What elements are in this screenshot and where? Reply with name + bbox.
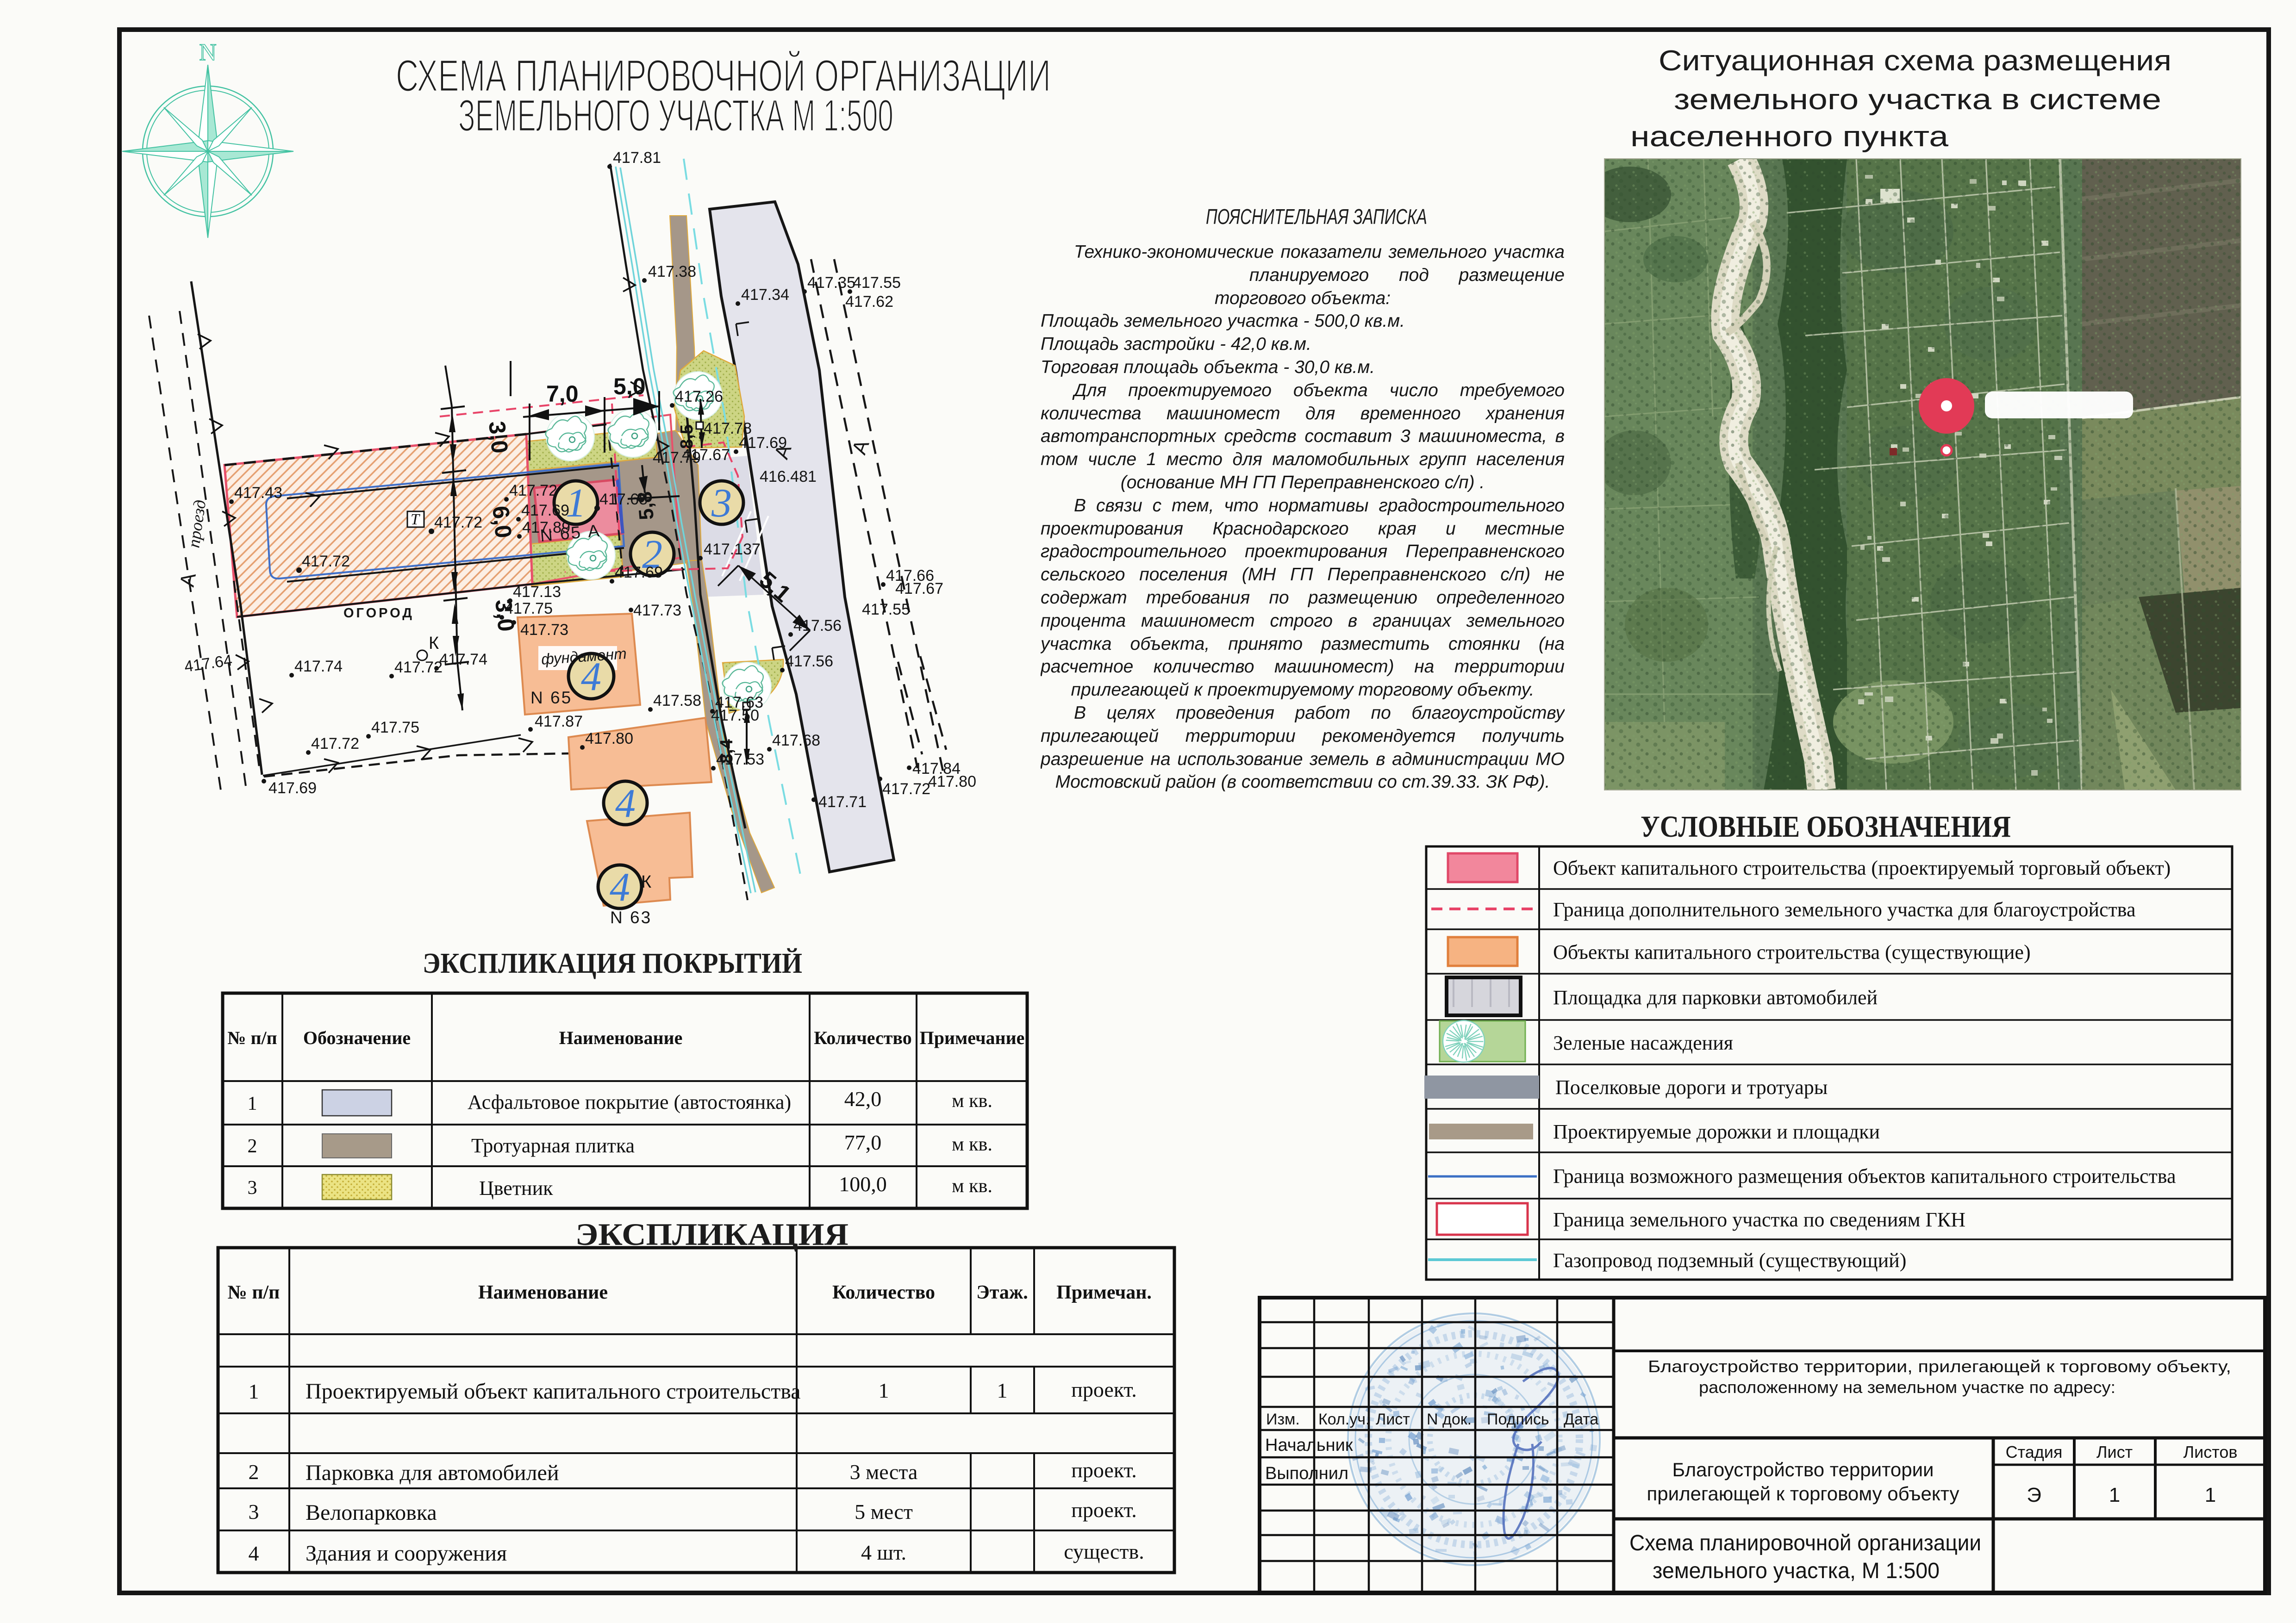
svg-text:Листов: Листов <box>2184 1443 2238 1461</box>
svg-text:417.13: 417.13 <box>513 583 561 601</box>
svg-text:4: 4 <box>249 1542 259 1565</box>
svg-text:Этаж.: Этаж. <box>976 1282 1028 1303</box>
svg-text:42,0: 42,0 <box>844 1087 882 1111</box>
svg-text:417.81: 417.81 <box>613 149 661 167</box>
svg-text:77,0: 77,0 <box>844 1131 882 1154</box>
svg-text:прилегающей к торговому объект: прилегающей к торговому объекту <box>1647 1483 1959 1505</box>
svg-text:1: 1 <box>2109 1484 2120 1506</box>
svg-text:Дата: Дата <box>1564 1411 1598 1428</box>
svg-text:417.72: 417.72 <box>434 514 482 531</box>
svg-text:Граница дополнительного земель: Граница дополнительного земельного участ… <box>1553 898 2135 921</box>
svg-text:А: А <box>848 436 873 457</box>
svg-text:4: 4 <box>615 781 636 826</box>
svg-text:1: 1 <box>249 1380 259 1403</box>
svg-text:417.72: 417.72 <box>882 780 930 798</box>
svg-text:Выполнил: Выполнил <box>1265 1464 1348 1483</box>
svg-text:N 65: N 65 <box>530 688 572 707</box>
svg-text:Количество: Количество <box>832 1282 935 1303</box>
svg-text:417.55: 417.55 <box>862 601 910 618</box>
svg-text:8,5: 8,5 <box>677 424 697 449</box>
svg-text:3: 3 <box>711 481 732 526</box>
svg-text:земельного участка, М 1:500: земельного участка, М 1:500 <box>1653 1559 1940 1583</box>
svg-text:417.43: 417.43 <box>234 484 282 502</box>
svg-text:1: 1 <box>997 1379 1008 1402</box>
svg-text:земельного участка в систем: земельного участка в системе <box>1674 84 2161 116</box>
svg-text:417.80: 417.80 <box>585 730 633 747</box>
svg-text:Э: Э <box>2027 1484 2041 1506</box>
svg-text:2: 2 <box>248 1136 257 1157</box>
svg-text:проект.: проект. <box>1071 1378 1136 1401</box>
svg-text:417.64: 417.64 <box>183 652 233 676</box>
svg-text:Обозначение: Обозначение <box>303 1027 411 1048</box>
svg-text:Объект капитального строительс: Объект капитального строительства (проек… <box>1553 857 2171 879</box>
svg-text:N: N <box>199 39 217 66</box>
svg-text:населенного пункта: населенного пункта <box>1630 121 1949 153</box>
svg-text:Кол.уч.: Кол.уч. <box>1318 1411 1370 1428</box>
svg-text:К: К <box>641 872 651 892</box>
svg-text:Цветник: Цветник <box>479 1177 553 1200</box>
svg-text:Здания и сооружения: Здания и сооружения <box>306 1541 507 1566</box>
svg-text:417.73: 417.73 <box>633 602 681 619</box>
svg-text:417.62: 417.62 <box>845 293 893 311</box>
svg-text:417.50: 417.50 <box>711 707 759 724</box>
svg-text:К: К <box>429 634 439 653</box>
svg-text:417.137: 417.137 <box>704 541 761 558</box>
svg-text:417.89: 417.89 <box>522 519 570 536</box>
svg-text:Подпись: Подпись <box>1487 1411 1549 1428</box>
svg-text:проект.: проект. <box>1071 1458 1136 1482</box>
svg-text:1: 1 <box>879 1379 889 1402</box>
svg-text:Объекты капитального строитель: Объекты капитального строительства (суще… <box>1553 941 2031 964</box>
svg-text:N док.: N док. <box>1427 1411 1472 1428</box>
svg-text:4 шт.: 4 шт. <box>861 1541 906 1564</box>
svg-text:100,0: 100,0 <box>839 1172 887 1196</box>
svg-text:Т: Т <box>411 511 420 528</box>
svg-text:ЗЕМЕЛЬНОГО УЧАСТКА М 1:500: ЗЕМЕЛЬНОГО УЧАСТКА М 1:500 <box>458 90 893 141</box>
svg-text:3,0: 3,0 <box>484 420 513 454</box>
svg-text:417.56: 417.56 <box>785 653 833 670</box>
svg-text:Наименование: Наименование <box>478 1282 608 1303</box>
svg-text:416.481: 416.481 <box>760 468 817 485</box>
svg-text:4: 4 <box>610 865 630 910</box>
svg-text:Изм.: Изм. <box>1266 1411 1300 1428</box>
svg-text:Асфальтовое покрытие (автостоя: Асфальтовое покрытие (автостоянка) <box>468 1091 791 1113</box>
svg-text:Количество: Количество <box>814 1027 912 1048</box>
svg-text:ОГОРОД: ОГОРОД <box>343 606 414 621</box>
svg-text:417.79: 417.79 <box>653 449 701 466</box>
svg-text:3: 3 <box>249 1500 259 1524</box>
svg-text:417.55: 417.55 <box>853 274 901 292</box>
svg-text:Примечан.: Примечан. <box>1056 1282 1152 1303</box>
svg-text:УСЛОВНЫЕ ОБОЗНАЧЕНИЯ: УСЛОВНЫЕ ОБОЗНАЧЕНИЯ <box>1641 810 2011 844</box>
svg-text:м кв.: м кв. <box>952 1090 992 1112</box>
svg-text:Парковка для автомобилей: Парковка для автомобилей <box>306 1461 559 1485</box>
svg-text:417.67: 417.67 <box>895 580 943 597</box>
svg-text:417.75: 417.75 <box>505 600 553 617</box>
svg-text:существ.: существ. <box>1064 1540 1144 1563</box>
svg-text:417.72: 417.72 <box>302 553 350 570</box>
svg-text:Площадка для парковки автомоби: Площадка для парковки автомобилей <box>1553 986 1878 1009</box>
svg-text:Тротуарная плитка: Тротуарная плитка <box>471 1134 635 1157</box>
svg-text:проезд: проезд <box>184 498 210 549</box>
svg-text:ЭКСПЛИКАЦИЯ: ЭКСПЛИКАЦИЯ <box>575 1217 849 1252</box>
svg-text:417.69: 417.69 <box>615 564 663 581</box>
svg-text:417.72: 417.72 <box>311 735 359 752</box>
svg-text:1: 1 <box>248 1093 257 1114</box>
svg-text:Граница земельного участка по: Граница земельного участка по сведениям … <box>1553 1208 1965 1231</box>
svg-text:417.68: 417.68 <box>772 732 820 749</box>
svg-text:Наименование: Наименование <box>559 1027 683 1048</box>
svg-text:Зеленые насаждения: Зеленые насаждения <box>1553 1032 1733 1054</box>
svg-text:А: А <box>176 571 200 589</box>
svg-text:417.38: 417.38 <box>648 263 696 280</box>
svg-text:Благоустройство территории: Благоустройство территории <box>1672 1459 1934 1480</box>
svg-text:1: 1 <box>2205 1484 2216 1506</box>
svg-text:3 места: 3 места <box>850 1460 918 1484</box>
svg-text:N 63: N 63 <box>610 908 652 927</box>
svg-text:Ситуационная схема размещени: Ситуационная схема размещения <box>1659 45 2171 77</box>
svg-text:расположенному на земельном уч: расположенному на земельном участке по а… <box>1699 1378 2115 1397</box>
svg-text:417.68: 417.68 <box>599 491 648 508</box>
svg-text:417.72: 417.72 <box>509 482 557 499</box>
svg-text:Благоустройство территории, пр: Благоустройство территории, прилегающей … <box>1648 1357 2231 1376</box>
svg-text:ПОЯСНИТЕЛЬНАЯ ЗАПИСКА: ПОЯСНИТЕЛЬНАЯ ЗАПИСКА <box>1206 205 1427 229</box>
svg-text:5,0: 5,0 <box>613 373 646 399</box>
svg-text:Стадия: Стадия <box>2006 1443 2063 1461</box>
svg-text:417.71: 417.71 <box>818 793 867 811</box>
svg-text:6,0: 6,0 <box>487 504 517 539</box>
svg-text:417.69: 417.69 <box>268 779 317 797</box>
svg-text:ЭКСПЛИКАЦИЯ ПОКРЫТИЙ: ЭКСПЛИКАЦИЯ ПОКРЫТИЙ <box>423 948 802 979</box>
svg-text:417.26: 417.26 <box>675 388 723 405</box>
svg-text:Начальник: Начальник <box>1265 1436 1353 1455</box>
svg-text:3: 3 <box>248 1177 257 1199</box>
svg-text:Схема планировочной организаци: Схема планировочной организации <box>1629 1531 1981 1555</box>
svg-text:417.80: 417.80 <box>928 773 976 790</box>
svg-text:5 мест: 5 мест <box>855 1500 913 1524</box>
svg-text:417.34: 417.34 <box>741 286 789 304</box>
svg-text:417.74: 417.74 <box>294 658 343 675</box>
svg-text:Газопровод подземный (существу: Газопровод подземный (существующий) <box>1553 1249 1906 1272</box>
svg-text:417.35: 417.35 <box>807 274 855 292</box>
svg-text:417.69: 417.69 <box>739 434 787 452</box>
svg-text:Граница возможного размещения: Граница возможного размещения объектов к… <box>1553 1165 2176 1188</box>
svg-text:417.73: 417.73 <box>520 621 568 639</box>
svg-text:Велопарковка: Велопарковка <box>306 1500 437 1525</box>
svg-text:7,0: 7,0 <box>546 381 579 407</box>
svg-text:Лист: Лист <box>1376 1411 1410 1428</box>
svg-text:проект.: проект. <box>1071 1498 1136 1522</box>
svg-text:Проектируемые дорожки и площад: Проектируемые дорожки и площадки <box>1553 1120 1880 1143</box>
svg-text:Лист: Лист <box>2096 1443 2133 1461</box>
svg-text:417.53: 417.53 <box>716 751 764 768</box>
svg-text:417.58: 417.58 <box>653 692 701 709</box>
svg-text:417.69: 417.69 <box>521 502 569 519</box>
svg-text:№ п/п: № п/п <box>227 1027 277 1048</box>
svg-text:417.75: 417.75 <box>371 719 419 736</box>
svg-text:417.56: 417.56 <box>793 617 842 634</box>
svg-text:м кв.: м кв. <box>952 1134 992 1155</box>
svg-text:№ п/п: № п/п <box>228 1282 280 1303</box>
svg-text:Поселковые дороги и тротуары: Поселковые дороги и тротуары <box>1555 1076 1828 1099</box>
svg-text:Примечание: Примечание <box>920 1027 1025 1048</box>
svg-text:м кв.: м кв. <box>952 1175 992 1197</box>
svg-text:417.74: 417.74 <box>439 651 487 668</box>
svg-text:Проектируемый объект капитальн: Проектируемый объект капитального строит… <box>306 1379 801 1404</box>
svg-text:417.87: 417.87 <box>535 713 583 730</box>
svg-text:2: 2 <box>249 1460 259 1484</box>
